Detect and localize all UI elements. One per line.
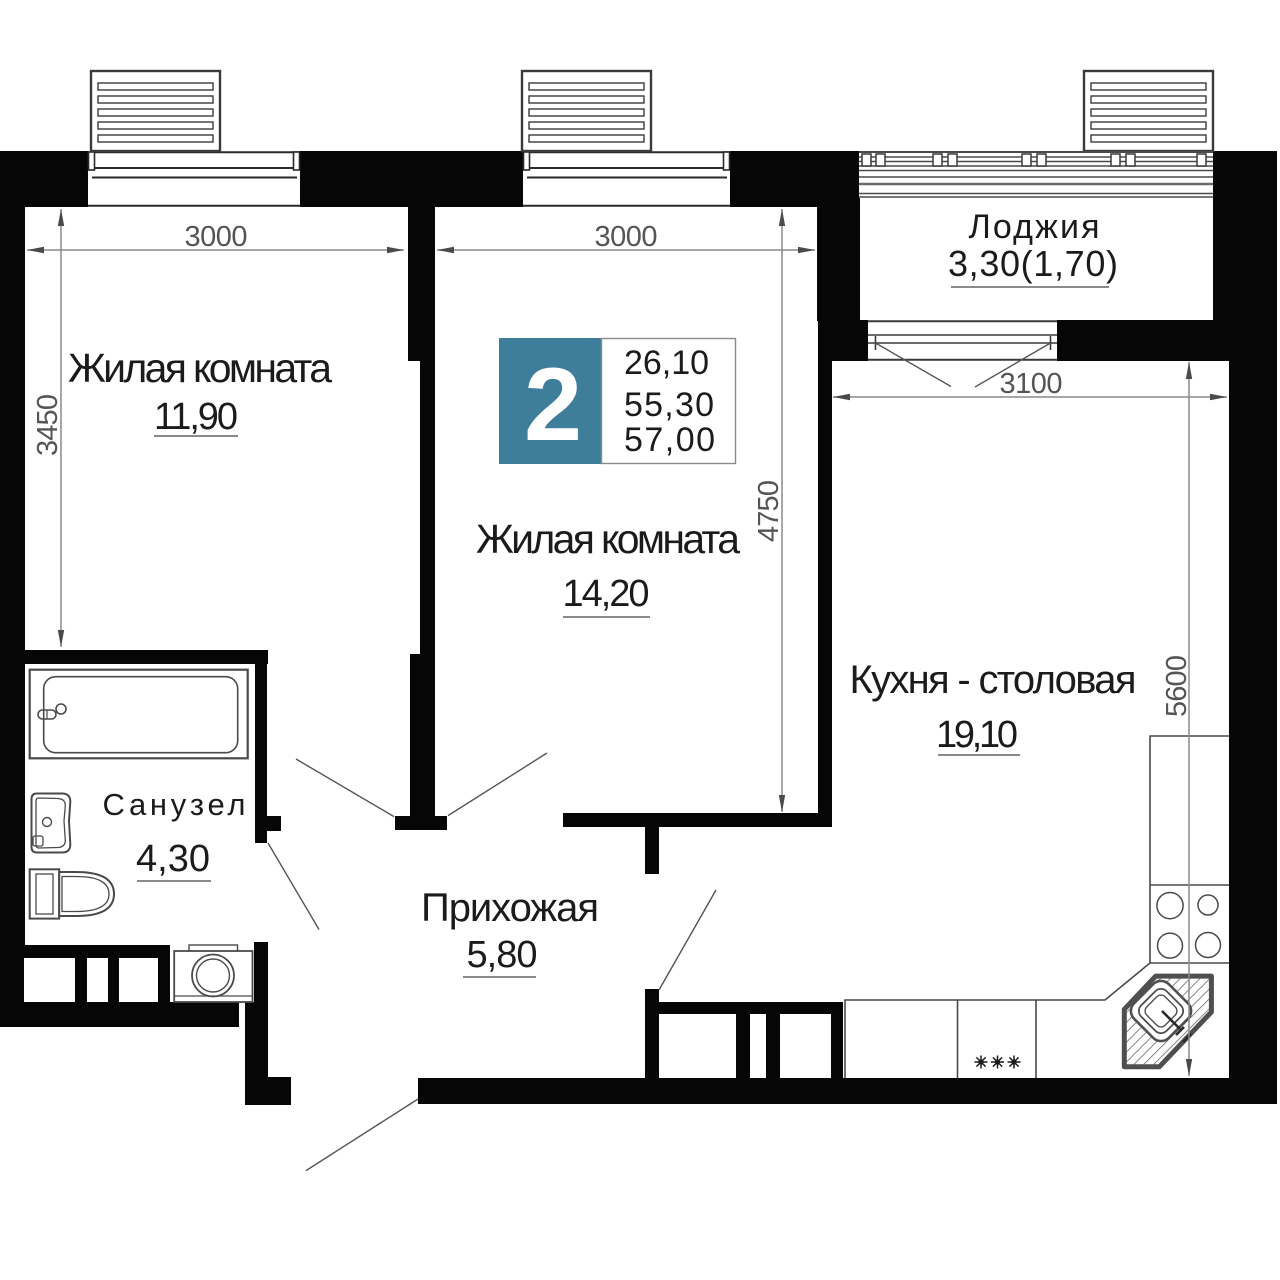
svg-text:3,30(1,70): 3,30(1,70) — [948, 243, 1118, 284]
svg-text:5600: 5600 — [1161, 655, 1193, 717]
svg-text:4,30: 4,30 — [136, 838, 210, 880]
svg-text:19,10: 19,10 — [936, 714, 1018, 756]
svg-text:5,80: 5,80 — [467, 934, 538, 976]
svg-text:Жилая комната: Жилая комната — [476, 516, 740, 562]
svg-text:55,30: 55,30 — [624, 386, 714, 424]
svg-text:26,10: 26,10 — [624, 344, 709, 382]
svg-text:Прихожая: Прихожая — [421, 886, 599, 930]
svg-text:3000: 3000 — [595, 221, 658, 253]
svg-text:14,20: 14,20 — [563, 573, 650, 615]
svg-text:2: 2 — [524, 347, 582, 463]
svg-text:3000: 3000 — [185, 221, 248, 253]
svg-text:3450: 3450 — [32, 394, 64, 456]
svg-text:4750: 4750 — [753, 480, 785, 542]
svg-text:3100: 3100 — [1000, 368, 1063, 400]
svg-text:Кухня - столовая: Кухня - столовая — [850, 658, 1137, 702]
svg-text:11,90: 11,90 — [154, 396, 238, 438]
svg-text:57,00: 57,00 — [624, 421, 715, 459]
svg-text:Жилая комната: Жилая комната — [68, 345, 332, 391]
